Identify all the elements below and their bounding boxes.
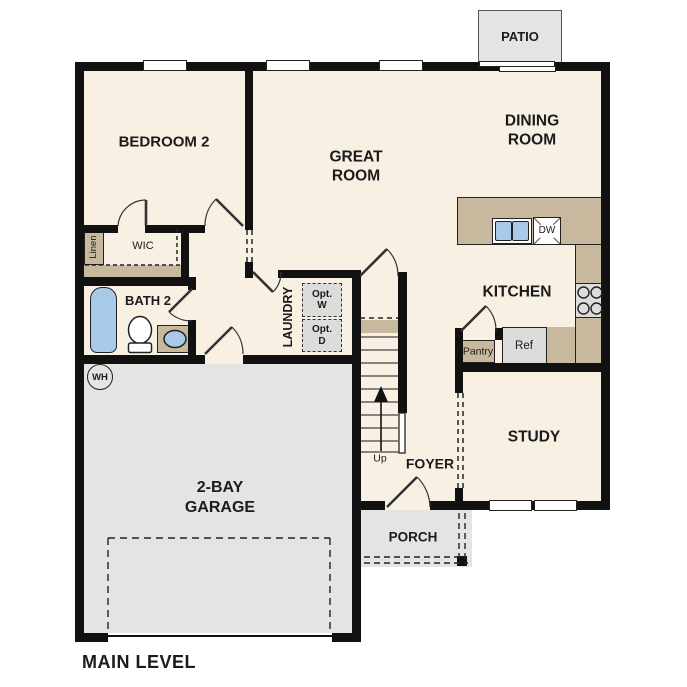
label-pantry: Pantry xyxy=(463,345,493,358)
wall-bath-bottom xyxy=(75,355,205,364)
label-foyer: FOYER xyxy=(406,455,454,473)
label-porch: PORCH xyxy=(389,530,438,547)
label-bedroom2: BEDROOM 2 xyxy=(119,134,210,153)
water-heater-label: WH xyxy=(92,372,108,383)
window-bedroom2 xyxy=(143,60,187,71)
label-linen: Linen xyxy=(88,235,100,258)
wall-exterior-right xyxy=(601,62,610,510)
label-up: Up xyxy=(373,452,386,465)
wall-pantry-left xyxy=(455,328,463,368)
wall-kitchen-study xyxy=(455,363,610,372)
label-great-room: GREAT ROOM xyxy=(311,148,401,187)
water-heater: WH xyxy=(87,364,113,390)
optional-dryer-box: Opt. D xyxy=(302,319,342,352)
optional-dryer-label: Opt. D xyxy=(309,324,335,347)
wall-bedroom2-bottom-a xyxy=(84,225,118,233)
window-greatroom-1 xyxy=(266,60,310,71)
window-study-2 xyxy=(534,500,577,511)
wall-wic-bath-divider xyxy=(75,277,196,286)
wall-study-left-top xyxy=(455,371,463,393)
label-dw: DW xyxy=(538,225,557,238)
wall-exterior-left xyxy=(75,62,84,642)
label-ref: Ref xyxy=(515,339,533,353)
sink-basin-right xyxy=(512,221,529,241)
bathtub xyxy=(90,287,117,353)
kitchen-sink xyxy=(492,218,532,244)
label-study: STUDY xyxy=(508,427,561,446)
label-bath2: BATH 2 xyxy=(125,293,171,309)
patio-slider-inner xyxy=(499,66,556,72)
front-door-opening xyxy=(385,501,430,510)
floor-plan: Opt. W Opt. D WH xyxy=(0,0,687,687)
porch-corner-post xyxy=(457,556,467,566)
label-laundry: LAUNDRY xyxy=(281,287,297,348)
page-title: MAIN LEVEL xyxy=(82,651,196,674)
wall-study-left-bottom xyxy=(455,488,463,508)
window-study-1 xyxy=(489,500,532,511)
window-greatroom-2 xyxy=(379,60,423,71)
stove xyxy=(575,283,603,318)
wall-bedroom2-right xyxy=(245,62,253,230)
label-kitchen: KITCHEN xyxy=(483,282,552,301)
stair-landing-strip xyxy=(359,320,400,333)
wic-shelf xyxy=(84,265,181,277)
wall-laundry-top xyxy=(278,270,361,278)
wall-laundry-bottom xyxy=(243,355,355,364)
label-wic: WIC xyxy=(132,240,153,254)
wall-pantry-right-stub xyxy=(495,328,503,340)
wall-wic-right xyxy=(181,225,189,285)
wall-stair-right xyxy=(398,272,407,413)
label-patio: PATIO xyxy=(501,29,539,45)
wall-hall-right-stub xyxy=(245,262,253,278)
optional-washer-label: Opt. W xyxy=(309,289,335,312)
garage-door-opening xyxy=(108,633,332,642)
wall-garage-right xyxy=(352,270,361,642)
sink-basin-left xyxy=(495,221,512,241)
label-garage: 2-BAY GARAGE xyxy=(165,478,275,518)
wall-bath-hall-a xyxy=(188,285,196,290)
optional-washer-box: Opt. W xyxy=(302,283,342,317)
wall-bedroom2-bottom-b xyxy=(145,225,205,233)
label-dining-room: DINING ROOM xyxy=(487,112,577,151)
counter-by-fridge xyxy=(547,327,575,363)
